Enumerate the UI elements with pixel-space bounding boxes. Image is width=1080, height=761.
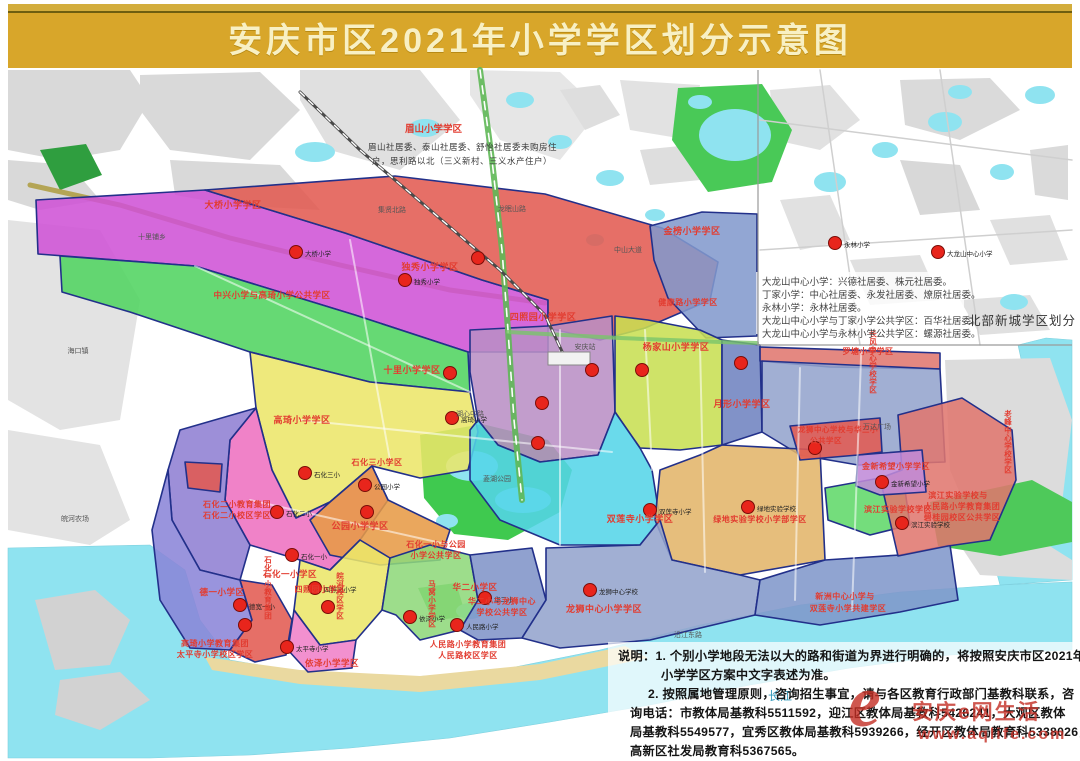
school-dot bbox=[290, 246, 303, 259]
notes-line2: 小学学区方案中文字表述为准。 bbox=[661, 665, 836, 683]
school-dot bbox=[281, 641, 294, 654]
lake bbox=[872, 142, 898, 158]
district-label: 人民路小学教育集团 bbox=[924, 501, 1001, 511]
urban-block bbox=[990, 215, 1068, 265]
lake bbox=[596, 170, 624, 186]
district-jinxin bbox=[856, 450, 926, 495]
district-label: 金新希望小学学区 bbox=[861, 461, 930, 471]
place-name-label: 沿江东路 bbox=[674, 630, 702, 639]
school-name-label: 龙狮中心学校 bbox=[599, 587, 639, 596]
lake bbox=[990, 164, 1014, 180]
district-label: 高琦小学学区 bbox=[273, 414, 330, 425]
district-label: 碧桂园校区公共学区 bbox=[923, 512, 1001, 522]
district-label: 十里小学学区 bbox=[383, 364, 440, 375]
district-label: 公共学区 bbox=[810, 435, 842, 445]
lake bbox=[814, 172, 846, 192]
district-label: 华二小学区 bbox=[452, 582, 497, 592]
watermark-brand: 安庆e网生活 bbox=[912, 696, 1041, 726]
school-dot bbox=[532, 437, 545, 450]
school-name-label: 石化三小 bbox=[314, 470, 341, 479]
district-label: 中兴小学与高琦小学公共学区 bbox=[213, 290, 330, 300]
district-label: 小学公共学区 bbox=[410, 550, 462, 560]
district-label: 新洲中心小学与 bbox=[815, 591, 875, 601]
district-label: 月形小学学区 bbox=[712, 398, 770, 409]
district-label: 人民路校区学区 bbox=[438, 650, 498, 660]
school-dot bbox=[299, 467, 312, 480]
school-dot bbox=[735, 357, 748, 370]
urban-block bbox=[8, 430, 130, 545]
district-label: 双莲寺小学共建学区 bbox=[810, 603, 887, 613]
inset-note-line4: 大龙山中心小学与丁家小学公共学区：百华社居委。 bbox=[762, 315, 981, 328]
school-dot bbox=[444, 367, 457, 380]
train-station bbox=[548, 352, 590, 365]
district-small-red-west bbox=[185, 462, 222, 492]
urban-block bbox=[900, 160, 980, 215]
district-label: 石化三小学区 bbox=[351, 457, 403, 467]
school-dot bbox=[876, 476, 889, 489]
place-name-label: 湖心中路 bbox=[456, 409, 484, 418]
lake bbox=[688, 95, 712, 109]
urban-block bbox=[140, 72, 300, 160]
school-name-label: 金新希望小学 bbox=[891, 479, 931, 488]
school-dot bbox=[399, 274, 412, 287]
district-label: 石化一小与公园 bbox=[405, 539, 466, 549]
district-label: 石化二小教育集团 bbox=[202, 499, 271, 509]
school-name-label: 大桥小学 bbox=[305, 249, 332, 258]
school-name-label: 大龙山中心小学 bbox=[947, 249, 993, 258]
district-label: 人民路小学教育集团 bbox=[430, 639, 507, 649]
inset-note-line2: 丁家小学：中心社居委、永发社居委、燎原社居委。 bbox=[762, 289, 981, 302]
watermark-logo: e bbox=[848, 672, 881, 732]
district-label: 健康路小学学区 bbox=[658, 297, 718, 307]
school-dot bbox=[829, 237, 842, 250]
lake bbox=[295, 142, 335, 162]
district-label: 太平寺小学校区学区 bbox=[176, 649, 254, 659]
district-label: 独秀小学学区 bbox=[400, 261, 458, 272]
inset-note-line5: 大龙山中心小学与永林小学公共学区：螺源社居委。 bbox=[762, 328, 981, 341]
inset-caption: 北部新城学区划分 bbox=[968, 310, 1076, 329]
notes-line6: 高新区社发局教育科5367565。 bbox=[630, 741, 804, 759]
place-name-label: 皖河农场 bbox=[61, 514, 89, 523]
school-name-label: 永林小学 bbox=[844, 240, 871, 249]
meishan-district-label: 眉山小学学区 bbox=[405, 121, 462, 135]
school-dot bbox=[742, 501, 755, 514]
lake bbox=[506, 92, 534, 108]
place-name-label: 菱湖公园 bbox=[483, 474, 511, 483]
school-dot bbox=[359, 479, 372, 492]
lake bbox=[699, 109, 771, 161]
district-label: 四照园小学学区 bbox=[510, 311, 577, 322]
school-name-label: 独秀小学 bbox=[414, 277, 441, 286]
school-dot bbox=[451, 619, 464, 632]
district-label: 公园小学学区 bbox=[331, 520, 388, 531]
school-dot bbox=[932, 246, 945, 259]
school-dot bbox=[404, 611, 417, 624]
place-name-label: 安庆站 bbox=[575, 342, 596, 351]
school-dot bbox=[239, 619, 252, 632]
district-label: 老峰中心学校学区 bbox=[1003, 409, 1012, 475]
meishan-note-line1: 眉山社居委、泰山社居委、舒怡社居委未购房住 bbox=[368, 141, 557, 153]
school-dot bbox=[361, 506, 374, 519]
district-label: 杨家山小学学区 bbox=[643, 341, 710, 352]
place-name-label: 海口镇 bbox=[68, 346, 89, 355]
school-name-label: 石化一小 bbox=[301, 552, 328, 561]
district-label: 双莲寺小学学区 bbox=[607, 513, 674, 524]
district-label: 绿地实验学校小学部学区 bbox=[713, 514, 807, 524]
district-yangjiashan bbox=[615, 316, 722, 450]
school-name-label: 人民路小学 bbox=[466, 622, 499, 631]
district-label: 德一小学区 bbox=[199, 587, 244, 597]
district-label: 华二小与龙狮中心 bbox=[468, 596, 536, 606]
school-dot bbox=[896, 517, 909, 530]
school-dot bbox=[586, 364, 599, 377]
meishan-note-line2: 户，思利路以北（三义新村、三义水产住户） bbox=[372, 155, 552, 167]
district-label: 石化二小校区学区 bbox=[202, 510, 271, 520]
school-dot bbox=[234, 599, 247, 612]
school-name-label: 石化二小 bbox=[286, 509, 313, 518]
district-label: 滨江实验学校学区 bbox=[864, 504, 932, 514]
lake bbox=[1000, 294, 1028, 310]
district-label: 学校公共学区 bbox=[477, 607, 528, 617]
district-label: 大桥小学学区 bbox=[204, 199, 261, 210]
school-dot bbox=[536, 397, 549, 410]
district-label: 高琦小学教育集团 bbox=[181, 638, 249, 648]
school-name-label: 太平寺小学 bbox=[296, 644, 329, 653]
school-dot bbox=[271, 506, 284, 519]
school-dot bbox=[636, 364, 649, 377]
district-label: 依泽小学学区 bbox=[305, 658, 359, 668]
place-name-label: 中山大道 bbox=[614, 245, 642, 254]
watermark-url: www.aqlife.com bbox=[918, 726, 1066, 744]
place-name-label: 十里铺乡 bbox=[138, 232, 166, 241]
school-dot bbox=[286, 549, 299, 562]
place-name-label: 万达广场 bbox=[863, 422, 891, 431]
poster: 安庆市区2021年小学学区划分示意图 大桥小学独秀小学高琦小学双莲寺小学绿地实验… bbox=[0, 0, 1080, 761]
district-label: 皖河校区学区 bbox=[335, 571, 344, 621]
district-label: 马窝小学学区 bbox=[427, 580, 436, 629]
lake bbox=[645, 209, 665, 221]
inset-note-line1: 大龙山中心小学：兴德社居委、株元社居委。 bbox=[762, 276, 952, 289]
district-label: 石化一小教育集团 bbox=[263, 556, 272, 621]
lake bbox=[948, 85, 972, 99]
school-dot bbox=[472, 252, 485, 265]
district-darkblue-strip bbox=[722, 340, 762, 445]
lake bbox=[928, 112, 962, 132]
place-name-label: 龙眠山路 bbox=[498, 204, 526, 213]
inset-note-line3: 永林小学：永林社居委。 bbox=[762, 302, 867, 315]
school-name-label: 公园小学 bbox=[374, 482, 401, 491]
urban-block bbox=[1030, 145, 1068, 200]
school-dot bbox=[584, 584, 597, 597]
place-name-label: 集贤北路 bbox=[378, 205, 406, 214]
district-label: 龙狮中心小学学区 bbox=[565, 603, 642, 614]
district-label: 滨江实验学校与 bbox=[928, 490, 988, 500]
district-label: 金榜小学学区 bbox=[662, 225, 720, 236]
lake bbox=[1025, 86, 1055, 104]
school-dot bbox=[322, 601, 335, 614]
school-name-label: 绿地实验学校 bbox=[757, 504, 797, 513]
